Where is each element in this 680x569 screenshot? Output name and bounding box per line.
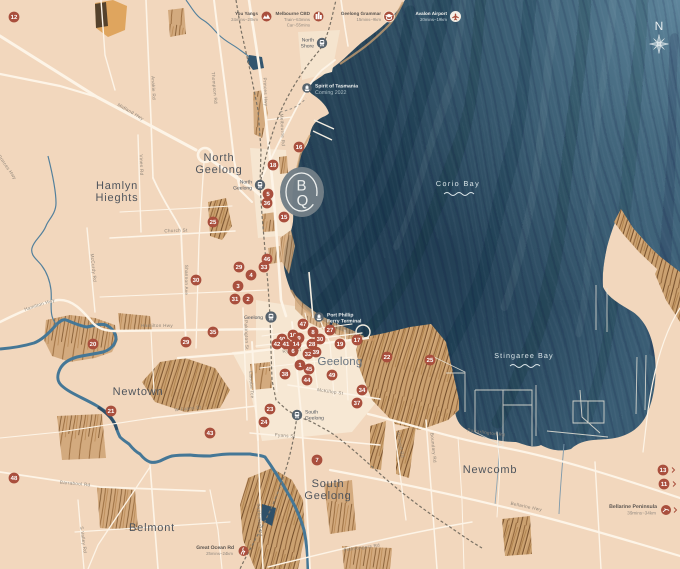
svg-text:Bellarine Peninsula: Bellarine Peninsula <box>609 504 657 510</box>
svg-text:42: 42 <box>274 341 281 348</box>
svg-text:North: North <box>204 152 235 164</box>
svg-text:Pakington St: Pakington St <box>243 320 249 350</box>
svg-text:Shannon Ave: Shannon Ave <box>184 265 189 296</box>
svg-text:Train~63mins: Train~63mins <box>284 17 310 22</box>
svg-text:13: 13 <box>660 467 667 474</box>
svg-text:29: 29 <box>183 339 190 346</box>
svg-text:17: 17 <box>354 337 361 344</box>
svg-text:Spirit of Tasmania: Spirit of Tasmania <box>315 84 358 90</box>
svg-text:20mins~19km: 20mins~19km <box>420 17 447 22</box>
svg-text:19: 19 <box>337 341 344 348</box>
svg-text:11: 11 <box>661 481 668 488</box>
svg-text:23: 23 <box>267 406 274 413</box>
svg-text:Vines Rd: Vines Rd <box>139 154 145 175</box>
svg-text:15mins~9km: 15mins~9km <box>357 17 382 22</box>
svg-text:41: 41 <box>283 341 290 348</box>
svg-text:38: 38 <box>282 371 289 378</box>
svg-text:39mins~34km: 39mins~34km <box>627 511 656 516</box>
svg-text:36: 36 <box>264 200 271 207</box>
svg-text:16: 16 <box>296 144 303 151</box>
svg-text:Belmont: Belmont <box>129 522 175 534</box>
svg-text:Church St: Church St <box>164 228 188 234</box>
svg-text:25: 25 <box>210 219 217 226</box>
svg-text:Hamilton Hwy: Hamilton Hwy <box>141 323 173 328</box>
svg-text:24mins~20km: 24mins~20km <box>231 17 258 22</box>
svg-text:15: 15 <box>281 214 288 221</box>
svg-text:43: 43 <box>207 430 214 437</box>
svg-text:30: 30 <box>193 277 200 284</box>
svg-text:Shore: Shore <box>301 44 315 50</box>
svg-text:12: 12 <box>11 14 18 21</box>
svg-text:Geelong: Geelong <box>318 356 363 368</box>
svg-text:You Yangs: You Yangs <box>235 11 259 16</box>
svg-text:34: 34 <box>359 387 366 394</box>
svg-text:Geelong: Geelong <box>233 186 252 192</box>
svg-text:Geelong: Geelong <box>244 315 263 321</box>
svg-text:35: 35 <box>210 329 217 336</box>
svg-text:31: 31 <box>232 296 239 303</box>
svg-text:29: 29 <box>236 264 243 271</box>
svg-text:47: 47 <box>300 321 307 328</box>
svg-text:25mins~24km: 25mins~24km <box>206 551 233 556</box>
svg-text:49: 49 <box>329 372 336 379</box>
svg-text:48: 48 <box>11 475 18 482</box>
svg-text:Stingaree Bay: Stingaree Bay <box>494 351 553 360</box>
svg-text:33: 33 <box>261 264 268 271</box>
svg-text:45: 45 <box>306 366 313 373</box>
svg-text:22: 22 <box>384 354 391 361</box>
svg-text:18: 18 <box>270 162 277 169</box>
svg-text:South: South <box>312 478 345 490</box>
svg-text:Corio Bay: Corio Bay <box>436 179 480 188</box>
svg-text:Hieghts: Hieghts <box>96 192 139 204</box>
svg-text:Q: Q <box>297 193 309 210</box>
svg-text:44: 44 <box>304 377 311 384</box>
svg-text:Newtown: Newtown <box>113 386 164 398</box>
svg-text:27: 27 <box>327 327 334 334</box>
svg-text:Melbourne CBD: Melbourne CBD <box>276 11 311 16</box>
svg-text:N: N <box>655 19 664 33</box>
svg-text:Geelong: Geelong <box>305 416 324 422</box>
svg-text:37: 37 <box>354 400 361 407</box>
svg-text:Avalon Airport: Avalon Airport <box>415 11 447 16</box>
svg-text:Geelong Grammar: Geelong Grammar <box>341 11 381 16</box>
svg-text:21: 21 <box>108 408 115 415</box>
svg-text:30: 30 <box>317 336 324 343</box>
svg-text:Geelong: Geelong <box>304 490 351 502</box>
svg-text:39: 39 <box>313 349 320 356</box>
svg-text:24: 24 <box>261 419 268 426</box>
svg-text:Car~55mins: Car~55mins <box>287 23 310 28</box>
svg-text:20: 20 <box>90 341 97 348</box>
svg-text:Newcomb: Newcomb <box>463 464 518 476</box>
svg-text:Coming 2022: Coming 2022 <box>315 90 347 96</box>
svg-text:Geelong: Geelong <box>195 164 242 176</box>
svg-text:25: 25 <box>427 357 434 364</box>
svg-text:Ferry Terminal: Ferry Terminal <box>327 319 362 325</box>
svg-text:Hamlyn: Hamlyn <box>96 180 138 192</box>
